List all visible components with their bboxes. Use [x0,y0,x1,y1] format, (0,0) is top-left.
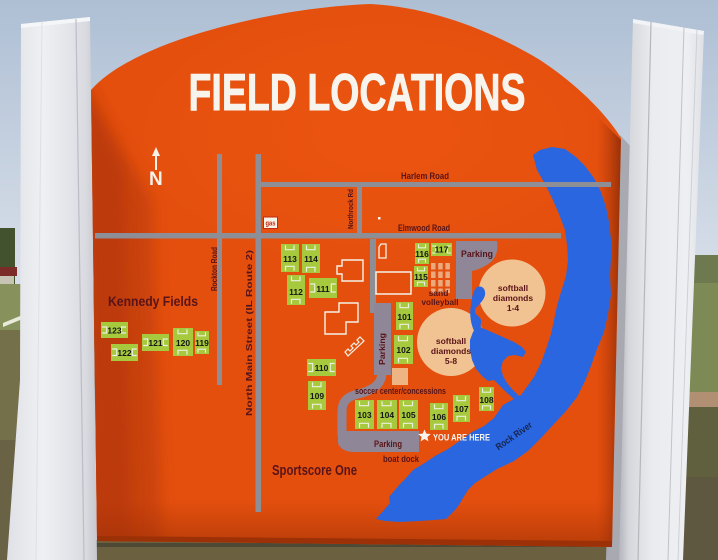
svg-text:117: 117 [435,245,449,255]
svg-text:diamonds: diamonds [431,346,471,356]
svg-text:Sportscore One: Sportscore One [272,463,357,479]
svg-text:113: 113 [283,254,297,264]
svg-text:softball: softball [436,336,466,346]
svg-text:116: 116 [415,249,429,259]
svg-text:N: N [149,169,163,190]
svg-text:soccer center/concessions: soccer center/concessions [355,386,446,397]
svg-text:119: 119 [195,338,209,348]
svg-text:123: 123 [107,326,121,336]
svg-text:Parking: Parking [378,333,387,365]
svg-text:boat dock: boat dock [383,454,420,464]
svg-text:Elmwood Road: Elmwood Road [398,223,450,234]
svg-text:102: 102 [396,345,410,355]
svg-text:107: 107 [454,404,468,414]
svg-text:gas: gas [266,221,276,228]
svg-text:YOU ARE HERE: YOU ARE HERE [433,433,490,444]
svg-text:121: 121 [148,338,162,348]
svg-text:Kennedy Fields: Kennedy Fields [108,293,198,309]
svg-text:5-8: 5-8 [445,356,458,366]
svg-text:120: 120 [176,338,190,348]
svg-text:106: 106 [432,412,446,422]
svg-text:Harlem Road: Harlem Road [401,171,449,181]
svg-text:Parking: Parking [374,439,402,450]
svg-text:112: 112 [289,287,303,297]
svg-text:114: 114 [304,254,318,264]
svg-text:111: 111 [316,284,330,294]
svg-text:115: 115 [414,272,428,282]
svg-text:softball: softball [498,283,528,293]
svg-text:FIELD LOCATIONS: FIELD LOCATIONS [189,64,526,122]
svg-text:104: 104 [380,410,394,420]
svg-text:Rockton Road: Rockton Road [210,247,219,291]
svg-text:volleyball: volleyball [422,297,459,307]
svg-text:103: 103 [357,410,371,420]
svg-text:110: 110 [315,363,329,373]
svg-text:122: 122 [117,348,131,358]
svg-text:105: 105 [401,410,415,420]
svg-text:North Main Street (IL Route 2): North Main Street (IL Route 2) [244,250,254,416]
svg-text:108: 108 [479,395,493,405]
svg-text:1-4: 1-4 [507,303,520,313]
svg-text:Parking: Parking [461,249,493,260]
svg-text:101: 101 [397,312,411,322]
svg-text:Northrock Rd: Northrock Rd [346,189,355,229]
svg-text:diamonds: diamonds [493,293,533,303]
svg-text:109: 109 [310,391,324,401]
